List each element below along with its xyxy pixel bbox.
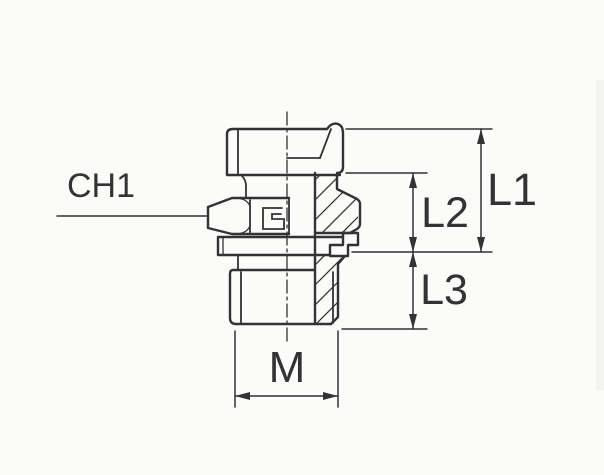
fitting-section-drawing-svg: CH1 L1 L2 L3 M: [0, 0, 604, 475]
technical-drawing-page: CH1 L1 L2 L3 M: [0, 0, 604, 475]
label-ch1: CH1: [67, 167, 135, 205]
label-l2: L2: [421, 189, 469, 237]
label-m: M: [269, 343, 306, 392]
label-l3: L3: [420, 266, 468, 314]
scan-edge-artifact: [596, 80, 604, 390]
label-l1: L1: [487, 164, 537, 215]
